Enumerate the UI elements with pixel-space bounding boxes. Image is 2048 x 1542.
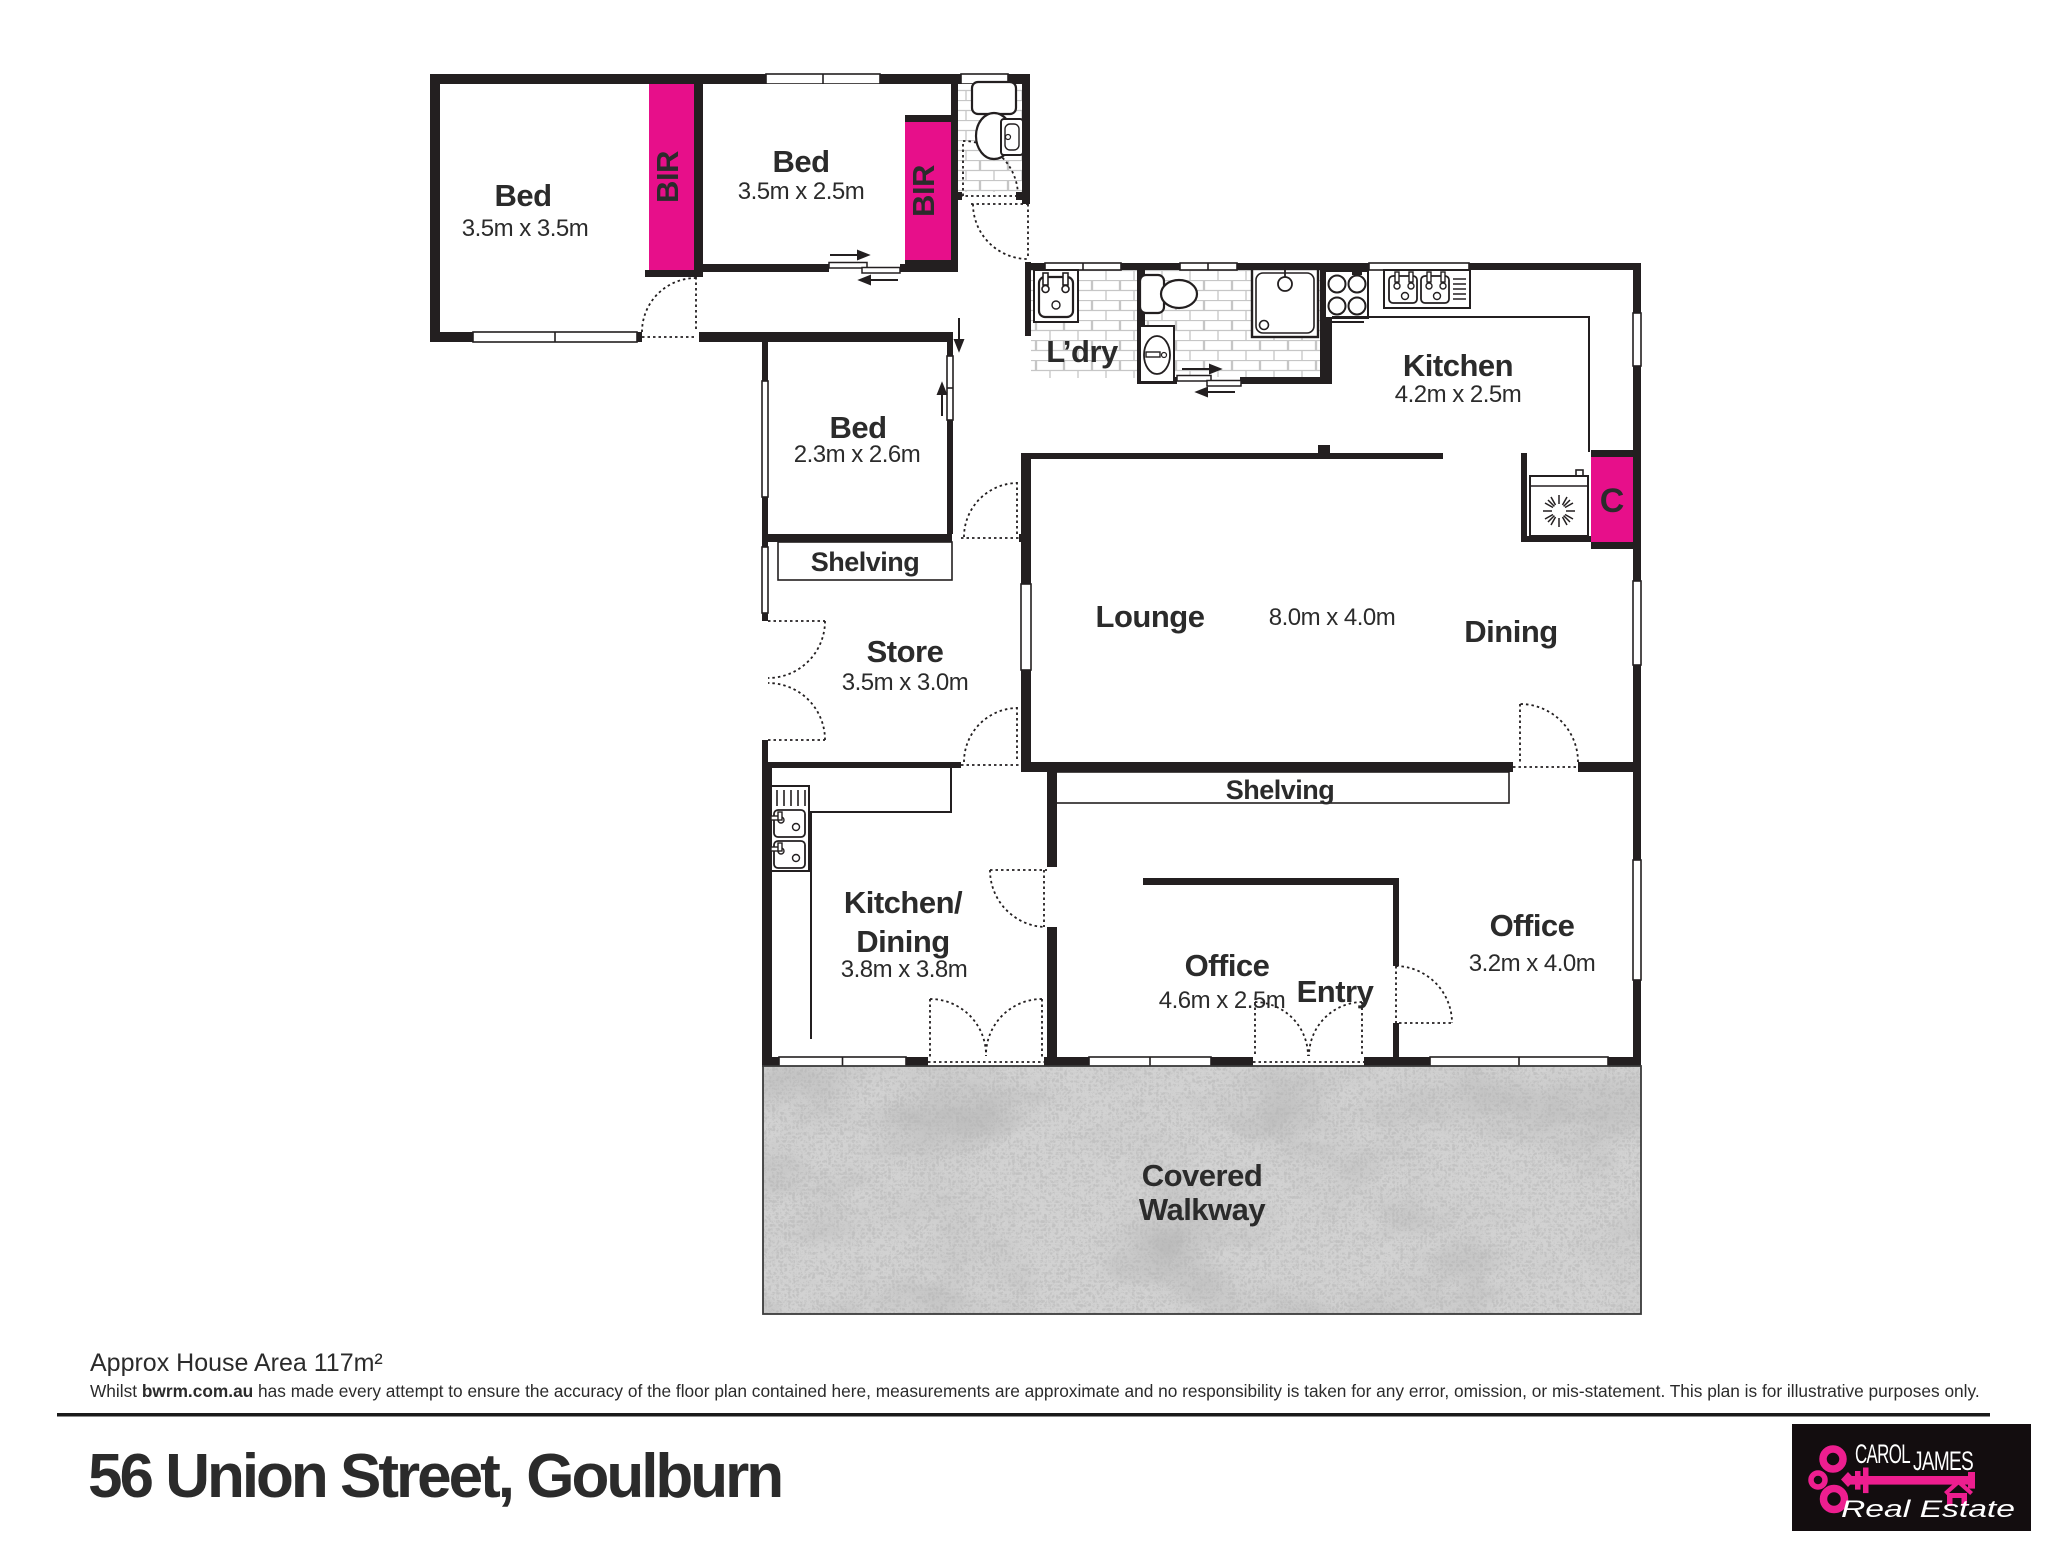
svg-text:BIR: BIR <box>906 165 941 217</box>
svg-text:4.2m x 2.5m: 4.2m x 2.5m <box>1395 381 1522 408</box>
svg-text:Dining: Dining <box>1464 614 1557 649</box>
svg-text:Bed: Bed <box>494 178 551 213</box>
svg-text:3.2m x 4.0m: 3.2m x 4.0m <box>1469 950 1596 977</box>
svg-text:3.8m x 3.8m: 3.8m x 3.8m <box>841 956 968 983</box>
svg-text:Shelving: Shelving <box>1226 775 1335 805</box>
svg-text:8.0m x 4.0m: 8.0m x 4.0m <box>1269 604 1396 631</box>
svg-text:2.3m x 2.6m: 2.3m x 2.6m <box>794 441 921 468</box>
svg-text:Shelving: Shelving <box>811 547 920 577</box>
svg-text:Office: Office <box>1185 948 1270 983</box>
svg-text:Lounge: Lounge <box>1096 599 1205 634</box>
svg-text:L’dry: L’dry <box>1046 334 1119 369</box>
svg-text:Bed: Bed <box>829 410 886 445</box>
svg-text:Entry: Entry <box>1297 974 1375 1009</box>
svg-text:3.5m x 3.0m: 3.5m x 3.0m <box>842 669 969 696</box>
svg-text:3.5m x 3.5m: 3.5m x 3.5m <box>462 215 589 242</box>
svg-text:56 Union Street, Goulburn: 56 Union Street, Goulburn <box>88 1442 781 1511</box>
svg-text:Dining: Dining <box>856 924 949 959</box>
svg-text:C: C <box>1600 482 1625 520</box>
svg-text:3.5m x 2.5m: 3.5m x 2.5m <box>738 178 865 205</box>
svg-text:JAMES: JAMES <box>1913 1446 1973 1476</box>
svg-text:Real Estate: Real Estate <box>1841 1496 2015 1523</box>
svg-text:Kitchen: Kitchen <box>1403 348 1513 383</box>
svg-text:Walkway: Walkway <box>1139 1192 1267 1227</box>
svg-text:Office: Office <box>1490 908 1575 943</box>
svg-text:Store: Store <box>867 634 944 669</box>
svg-text:Covered: Covered <box>1142 1158 1263 1193</box>
svg-text:Kitchen/: Kitchen/ <box>844 885 963 920</box>
svg-text:4.6m x 2.5m: 4.6m x 2.5m <box>1159 987 1286 1014</box>
svg-text:Whilst bwrm.com.au has made ev: Whilst bwrm.com.au has made every attemp… <box>90 1381 1980 1401</box>
svg-text:Bed: Bed <box>772 144 829 179</box>
svg-text:BIR: BIR <box>650 151 685 203</box>
svg-text:Approx House Area 117m²: Approx House Area 117m² <box>90 1349 383 1377</box>
svg-text:CAROL: CAROL <box>1855 1439 1911 1469</box>
